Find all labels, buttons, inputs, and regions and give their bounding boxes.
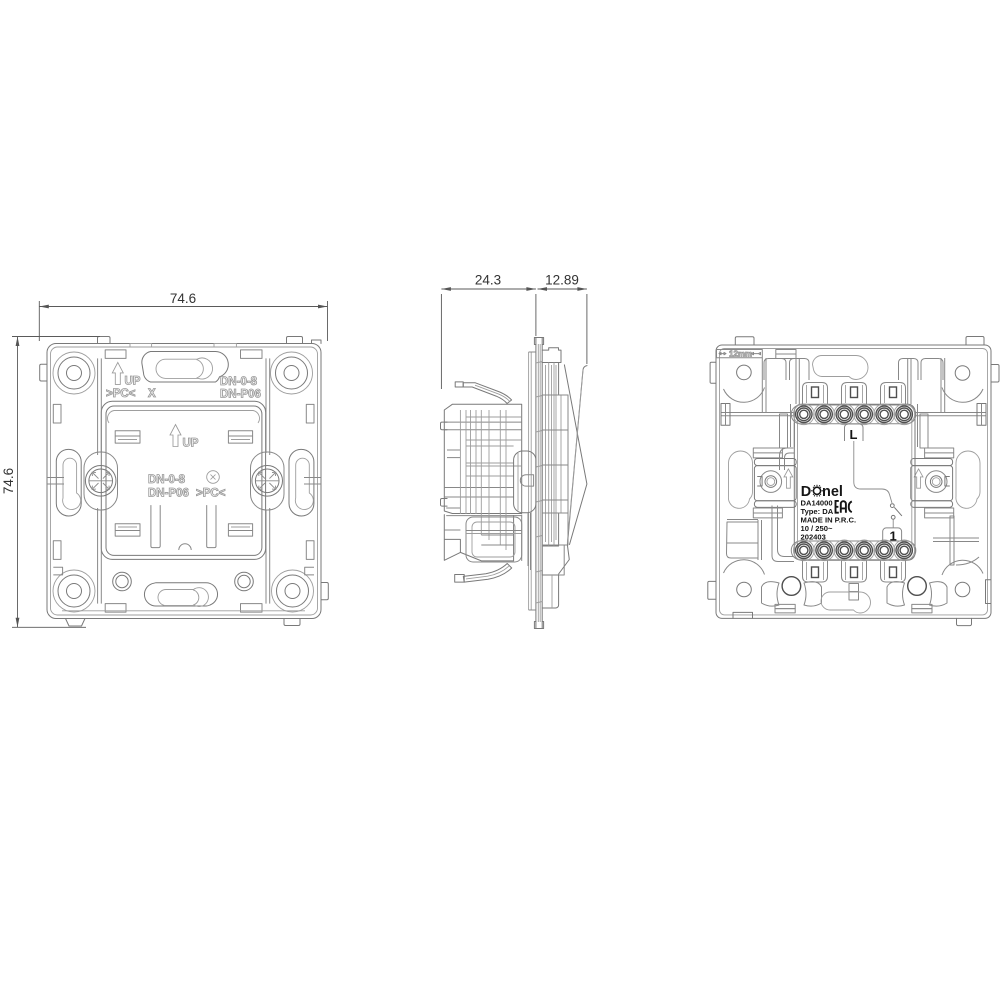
svg-text:L: L — [850, 427, 858, 442]
svg-text:12mm: 12mm — [729, 350, 752, 359]
svg-text:UP: UP — [183, 438, 199, 450]
svg-text:202403: 202403 — [801, 533, 826, 542]
svg-text:DN-P06: DN-P06 — [220, 389, 261, 401]
svg-text:X: X — [148, 388, 156, 400]
svg-text:UP: UP — [125, 376, 141, 388]
svg-text:1: 1 — [890, 529, 897, 544]
svg-text:12.89: 12.89 — [545, 273, 579, 288]
svg-text:DN-0-8: DN-0-8 — [220, 376, 258, 388]
svg-text:24.3: 24.3 — [475, 273, 501, 288]
svg-text:>PC<: >PC< — [196, 488, 226, 500]
svg-text:DN-0-8: DN-0-8 — [148, 474, 186, 486]
svg-text:>PC<: >PC< — [106, 388, 136, 400]
svg-text:74.6: 74.6 — [1, 468, 16, 494]
svg-text:74.6: 74.6 — [170, 291, 196, 306]
svg-text:DN-P06: DN-P06 — [148, 488, 189, 500]
